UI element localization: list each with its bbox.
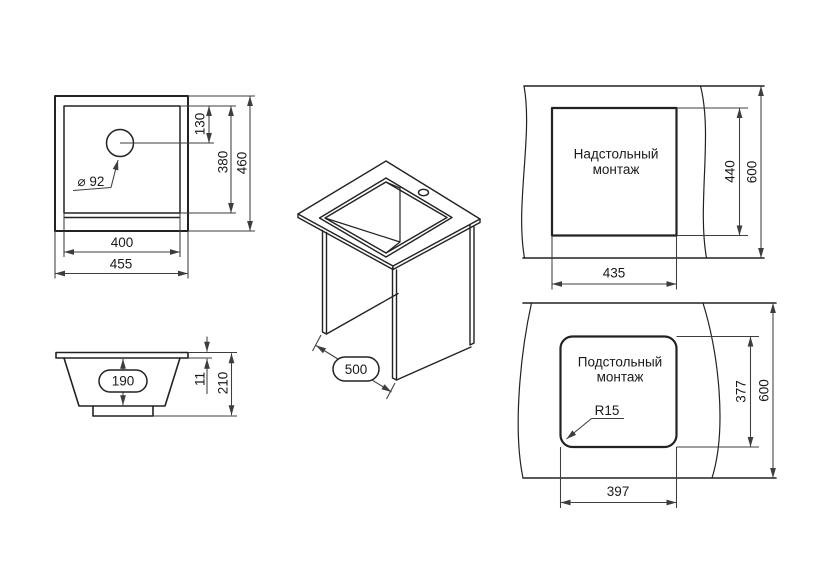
under-mount-view: Подстольный монтаж R15 397 377 600 [518, 303, 776, 508]
surface-mount-dimensions [552, 86, 761, 290]
under-mount-cutout [561, 337, 677, 448]
break-line-right [703, 303, 720, 478]
sink-rim [56, 353, 188, 359]
dim-overall-depth: 460 [235, 152, 250, 175]
dim-bowl-depth: 380 [216, 151, 231, 174]
surface-mount-view: Надстольный монтаж 435 440 600 [522, 86, 764, 290]
dim-surface-cutout-depth: 440 [723, 160, 738, 183]
sink-plan-outline [55, 96, 188, 231]
top-view: ⌀ 92 400 455 130 380 460 [55, 96, 255, 279]
isometric-view: 500 [298, 161, 480, 399]
dim-under-cutout-depth: 377 [734, 380, 749, 403]
dim-cabinet-width: 500 [345, 362, 368, 377]
dim-rim-height: 11 [193, 372, 208, 386]
dim-overall-height: 210 [216, 372, 231, 395]
dim-corner-radius: R15 [595, 403, 620, 418]
sink-outer-rect [55, 96, 188, 231]
dim-surface-counter-depth: 600 [745, 161, 760, 184]
dim-under-counter-depth: 600 [757, 379, 772, 402]
sink-bowl-rect [64, 106, 180, 213]
dim-under-cutout-width: 397 [607, 484, 630, 499]
surface-mount-title-line2: монтаж [593, 162, 640, 177]
under-mount-title-line1: Подстольный [578, 355, 662, 370]
iso-sink-top [298, 161, 480, 270]
surface-mount-title-line1: Надстольный [574, 147, 659, 162]
break-line-right [701, 86, 707, 258]
front-view: 190 11 210 [56, 337, 237, 417]
under-mount-title-line2: монтаж [597, 370, 644, 385]
dim-hole-diameter: ⌀ 92 [78, 174, 105, 189]
iso-faucet-hole [419, 189, 429, 195]
dim-hole-offset: 130 [193, 113, 208, 136]
sink-technical-drawing: ⌀ 92 400 455 130 380 460 190 11 210 [0, 0, 816, 580]
dim-bowl-inner-depth: 190 [112, 374, 135, 389]
sink-foot [93, 406, 153, 416]
technical-drawing-page: ⌀ 92 400 455 130 380 460 190 11 210 [0, 0, 816, 580]
break-line-left [522, 86, 527, 258]
dim-bowl-width: 400 [111, 235, 134, 250]
dim-surface-cutout-width: 435 [603, 266, 626, 281]
dim-overall-width: 455 [110, 257, 133, 272]
break-line-left [518, 303, 531, 478]
